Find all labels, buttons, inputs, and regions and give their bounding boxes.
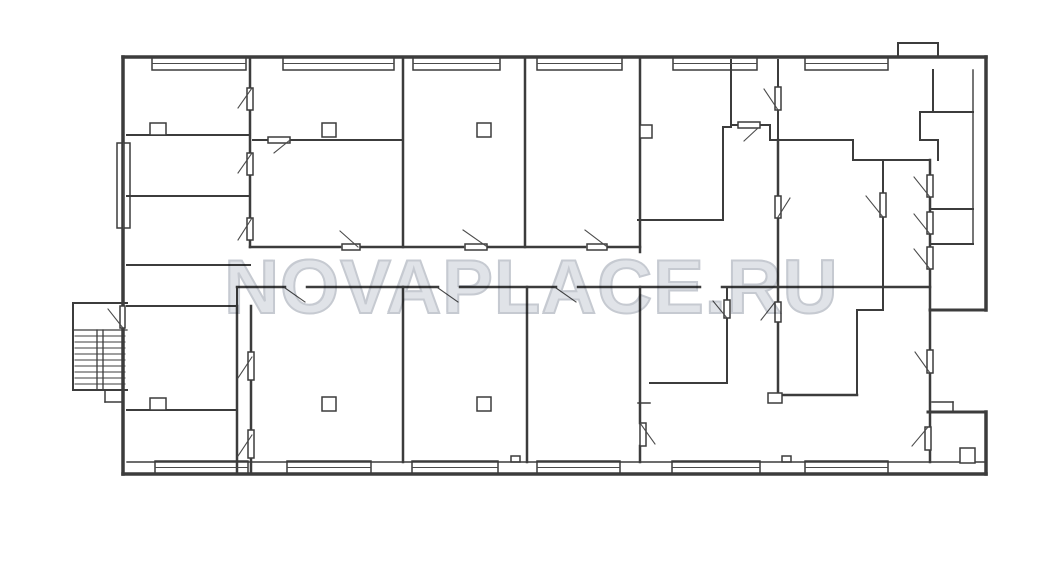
- door-swing-or-frame-line: [761, 302, 775, 320]
- door-swing-or-frame-line: [556, 288, 576, 302]
- door-swing-or-frame-line: [285, 288, 305, 302]
- door-leaf-or-column: [768, 393, 782, 403]
- door-leaf-or-column: [960, 448, 975, 463]
- page: { "watermark": { "text": "NOVAPLACE.RU" …: [0, 0, 1063, 570]
- door-leaf-or-column: [925, 427, 931, 450]
- door-swing-or-frame-line: [744, 128, 758, 141]
- door-leaf-or-column: [880, 193, 886, 217]
- door-leaf-or-column: [775, 302, 781, 322]
- door-leaf-or-column: [477, 397, 491, 411]
- door-leaf-or-column: [248, 352, 254, 380]
- door-leaf-or-column: [150, 123, 166, 135]
- door-leaf-or-column: [322, 397, 336, 411]
- door-leaf-or-column: [150, 398, 166, 410]
- floor-plan-drawing: [0, 0, 1063, 570]
- door-leaf-or-column: [322, 123, 336, 137]
- door-swing-or-frame-line: [438, 288, 458, 302]
- window-rect: [511, 456, 520, 462]
- door-leaf-or-column: [248, 430, 254, 458]
- door-leaf-or-column: [738, 122, 760, 128]
- door-leaf-or-column: [477, 123, 491, 137]
- door-leaf-or-column: [640, 125, 652, 138]
- floor-plan-canvas: NOVAPLACE.RU: [0, 0, 1063, 570]
- window-rect: [782, 456, 791, 462]
